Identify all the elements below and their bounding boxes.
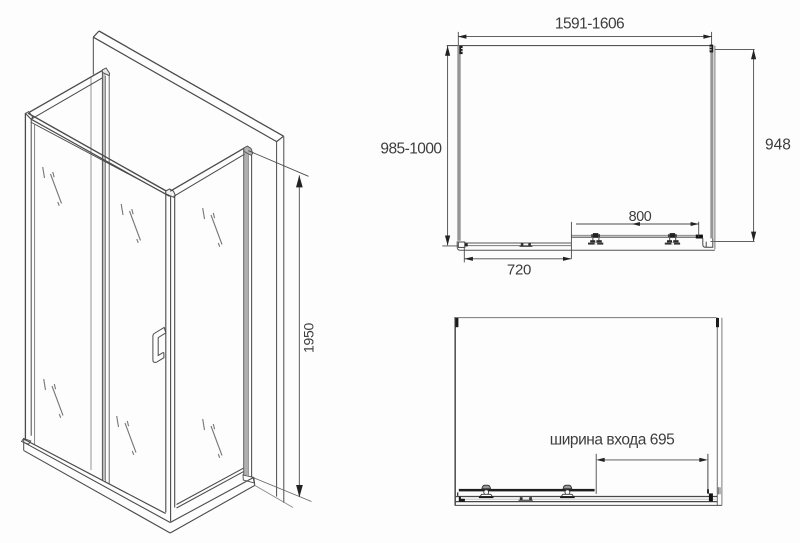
svg-text:720: 720 [507, 262, 531, 279]
svg-text:985-1000: 985-1000 [380, 140, 442, 157]
svg-text:948: 948 [765, 136, 791, 153]
svg-text:1591-1606: 1591-1606 [555, 16, 624, 33]
svg-text:ширина входа 695: ширина входа 695 [550, 431, 675, 448]
svg-text:800: 800 [629, 209, 652, 225]
svg-text:1950: 1950 [301, 323, 317, 353]
